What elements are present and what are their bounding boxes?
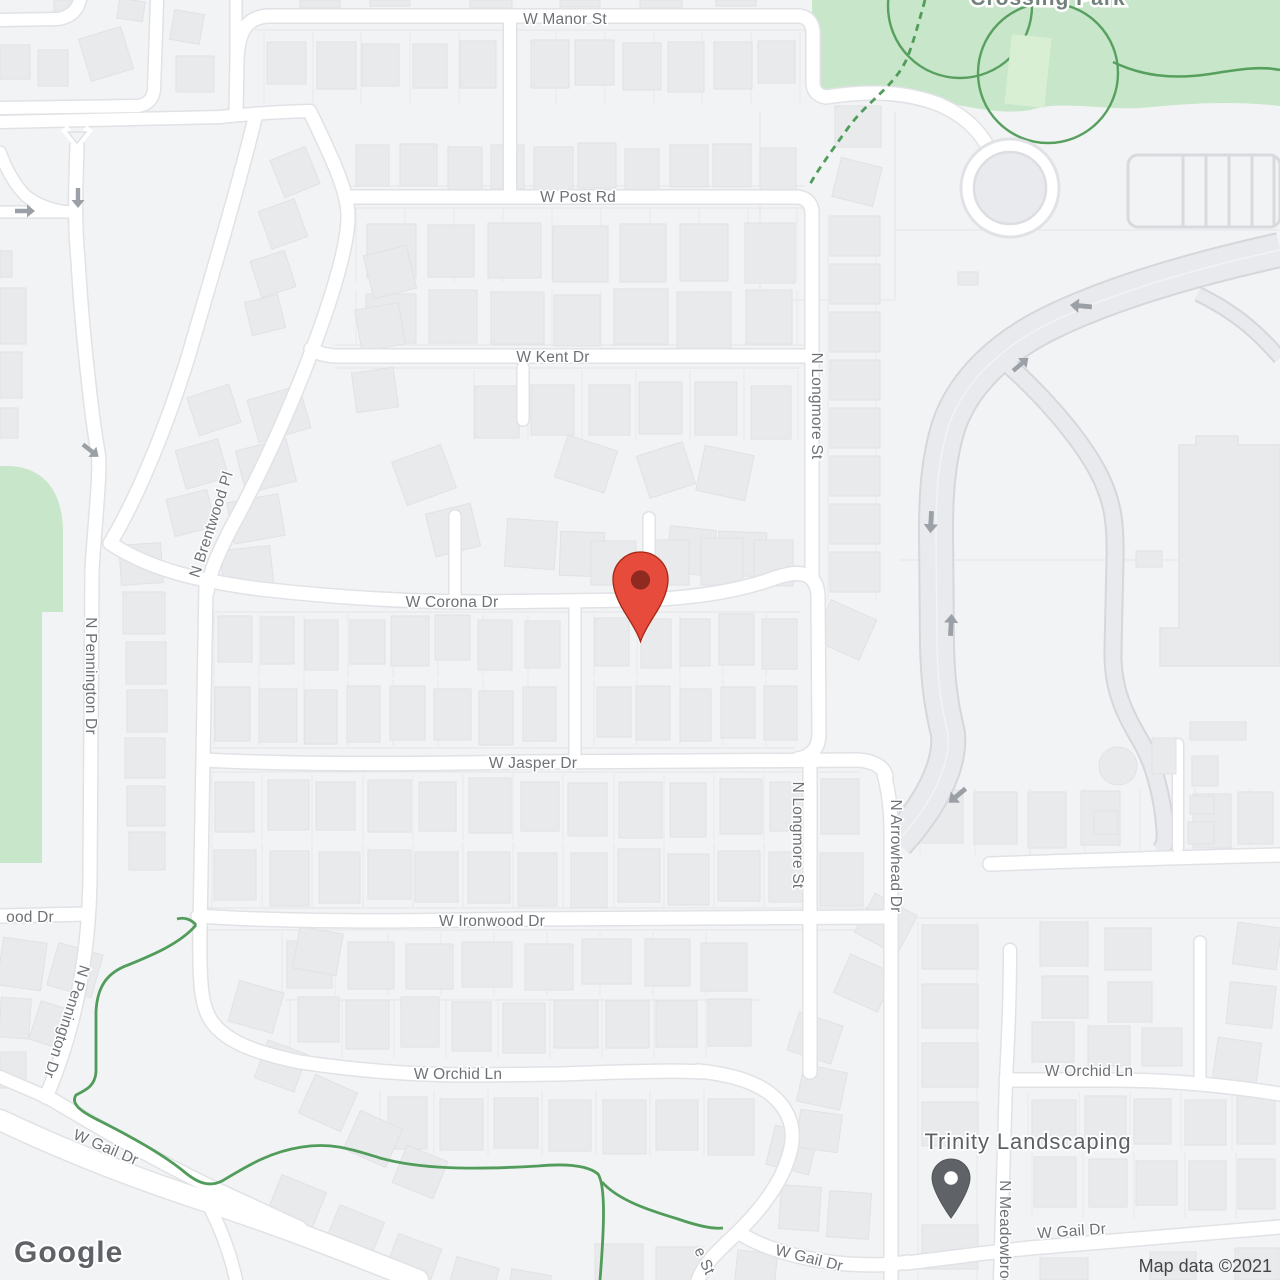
svg-text:W Manor St: W Manor St xyxy=(523,11,607,28)
svg-text:N Arrowhead Dr: N Arrowhead Dr xyxy=(887,799,904,912)
svg-text:N Pennington Dr: N Pennington Dr xyxy=(82,617,99,735)
svg-text:Map data ©2021: Map data ©2021 xyxy=(1139,1256,1272,1276)
svg-text:W Corona Dr: W Corona Dr xyxy=(406,594,499,611)
svg-text:ood Dr: ood Dr xyxy=(6,909,54,926)
svg-text:N Meadowbroo: N Meadowbroo xyxy=(996,1180,1013,1280)
svg-text:W Jasper Dr: W Jasper Dr xyxy=(489,755,577,772)
svg-text:W Orchid Ln: W Orchid Ln xyxy=(1045,1063,1133,1080)
svg-text:N Longmore St: N Longmore St xyxy=(789,782,806,889)
svg-text:Google: Google xyxy=(14,1236,123,1269)
svg-text:W Kent Dr: W Kent Dr xyxy=(516,349,589,366)
svg-text:N Longmore St: N Longmore St xyxy=(808,353,825,460)
svg-text:Trinity Landscaping: Trinity Landscaping xyxy=(924,1129,1131,1154)
svg-text:Crossing Park: Crossing Park xyxy=(970,0,1125,10)
svg-text:W Orchid Ln: W Orchid Ln xyxy=(414,1066,502,1083)
svg-text:W Post Rd: W Post Rd xyxy=(540,189,616,206)
svg-text:W Ironwood Dr: W Ironwood Dr xyxy=(439,913,545,930)
